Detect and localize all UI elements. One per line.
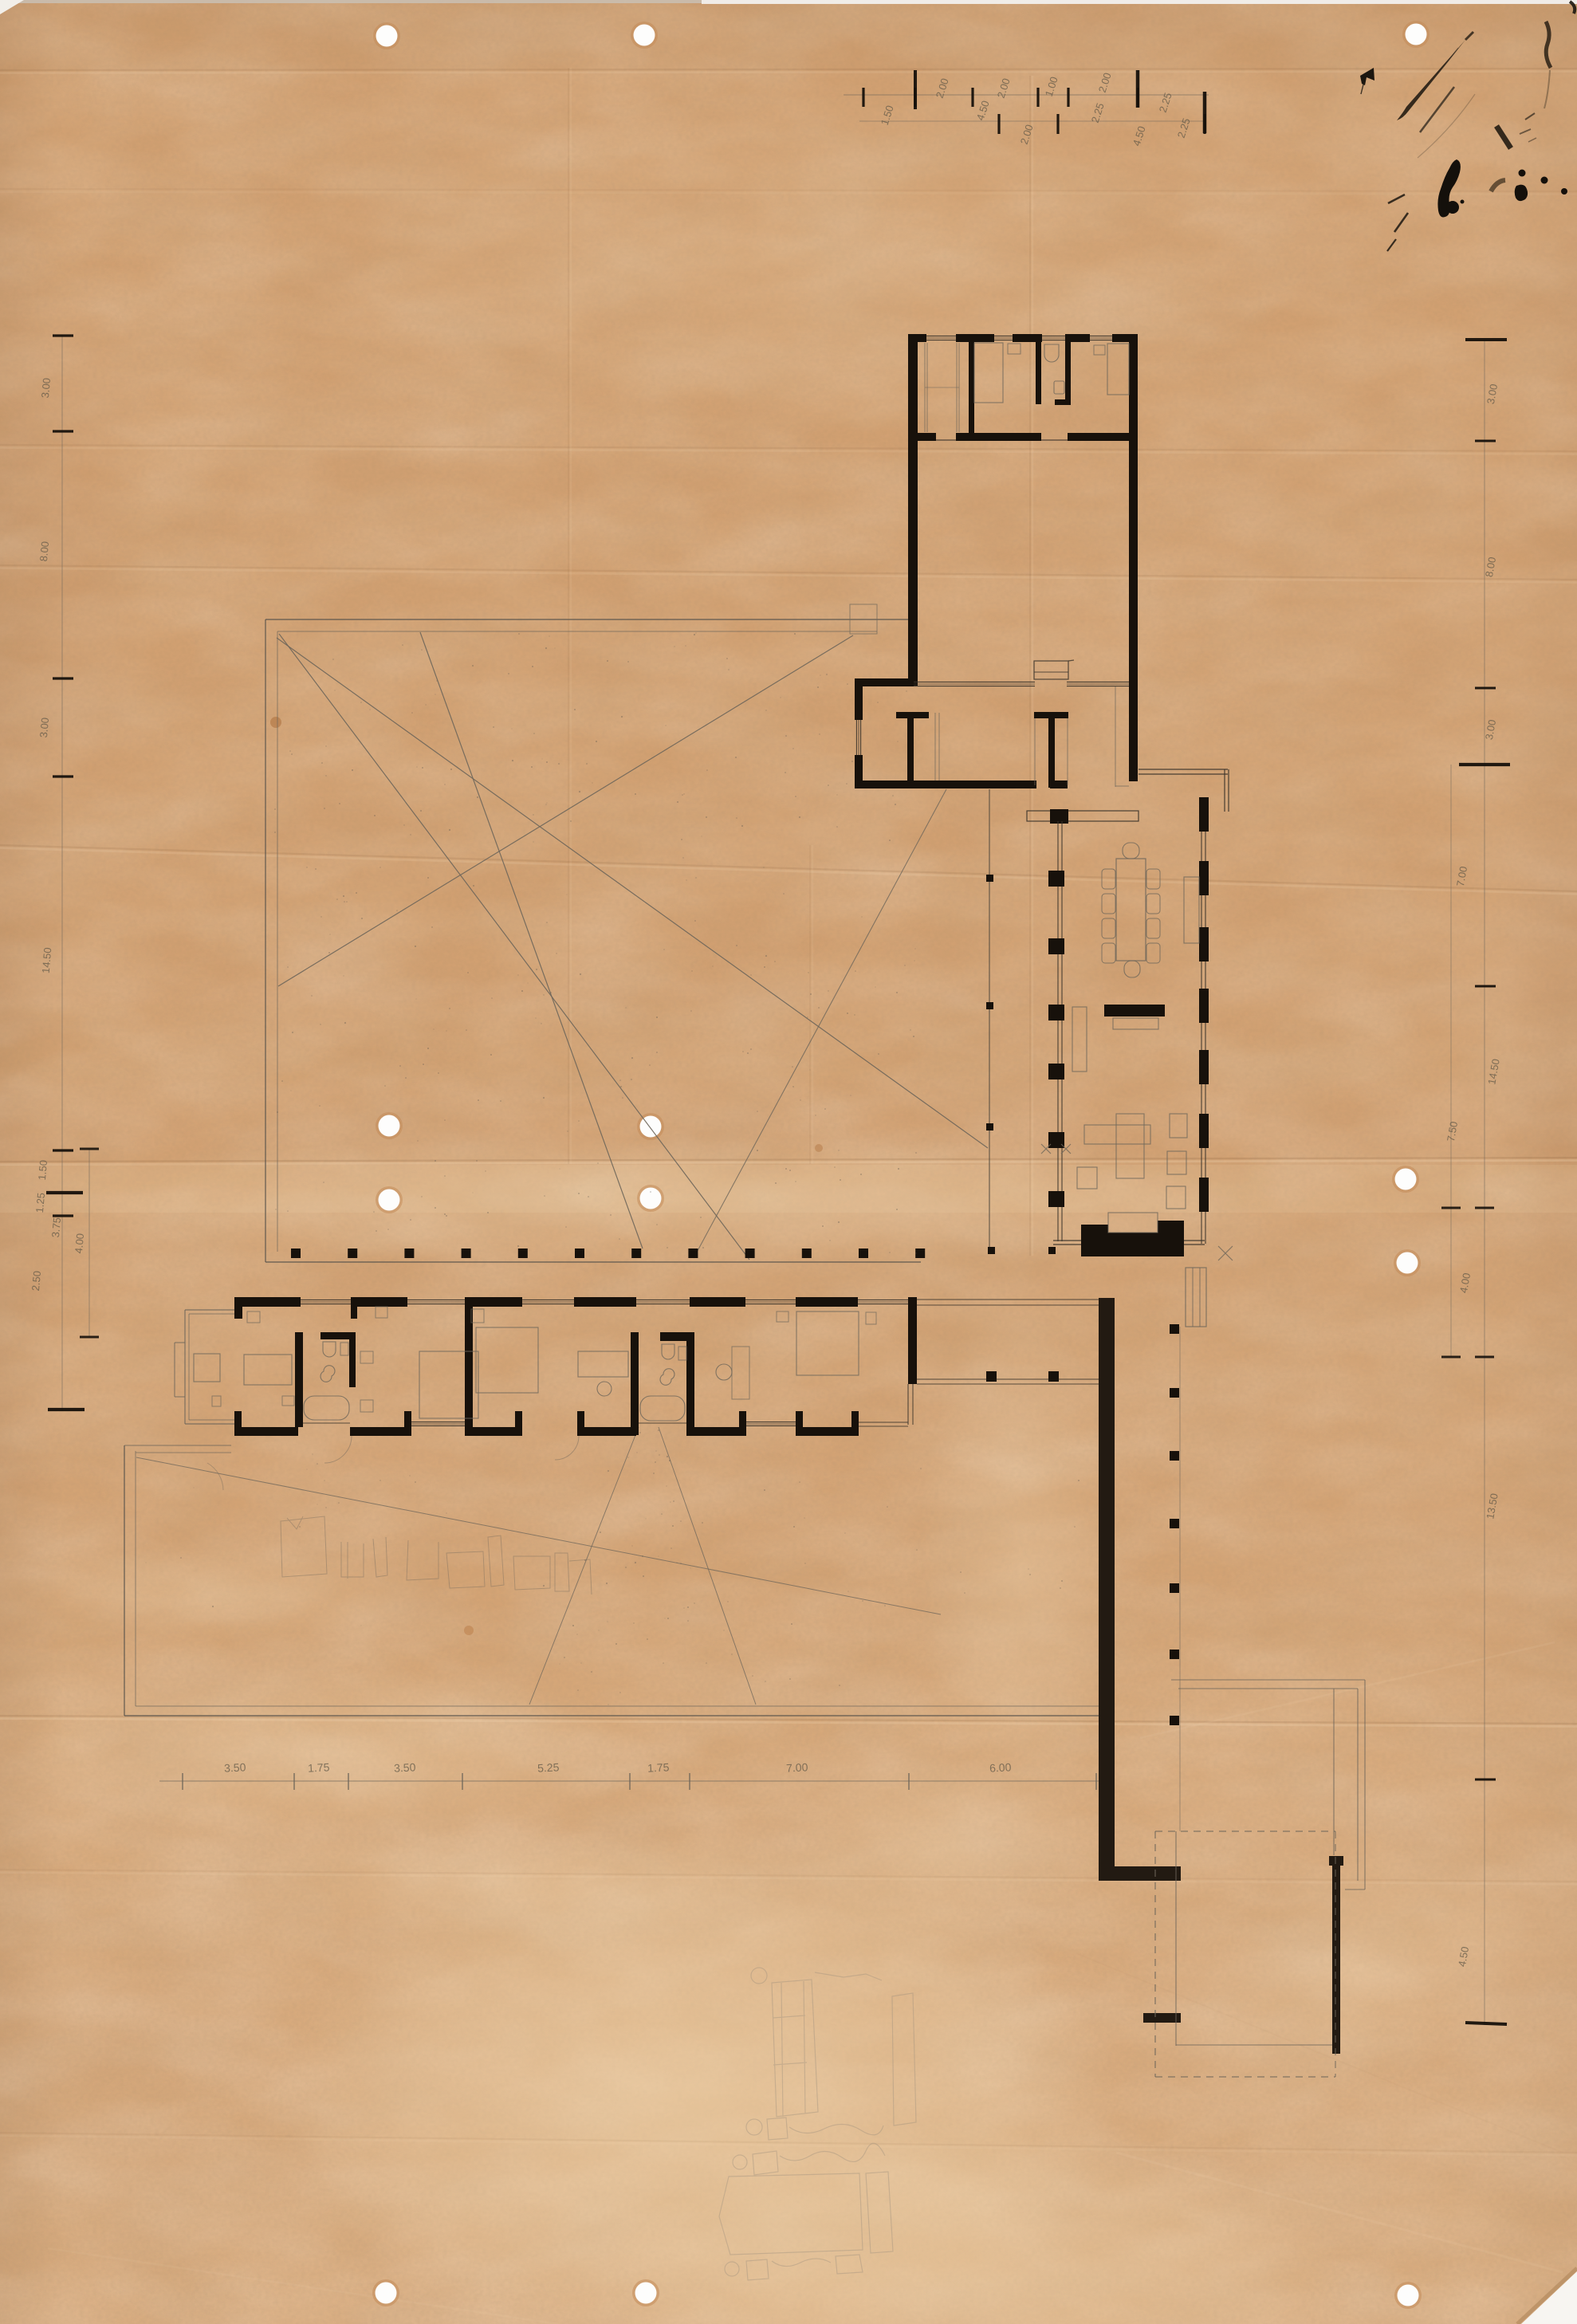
svg-text:3.75: 3.75 bbox=[49, 1217, 63, 1238]
svg-text:3.00: 3.00 bbox=[37, 717, 51, 738]
svg-text:3.50: 3.50 bbox=[224, 1760, 246, 1774]
svg-text:1.25: 1.25 bbox=[33, 1192, 47, 1213]
svg-text:1.75: 1.75 bbox=[308, 1760, 330, 1774]
svg-text:8.00: 8.00 bbox=[37, 541, 51, 562]
svg-text:2.50: 2.50 bbox=[29, 1270, 43, 1292]
svg-text:4.00: 4.00 bbox=[73, 1233, 86, 1254]
svg-text:3.00: 3.00 bbox=[39, 377, 53, 399]
svg-text:1.50: 1.50 bbox=[36, 1159, 49, 1181]
svg-text:5.25: 5.25 bbox=[537, 1760, 560, 1774]
svg-text:6.00: 6.00 bbox=[989, 1760, 1012, 1774]
svg-text:7.00: 7.00 bbox=[786, 1760, 808, 1774]
svg-text:1.75: 1.75 bbox=[647, 1760, 670, 1774]
svg-text:14.50: 14.50 bbox=[40, 947, 54, 974]
svg-text:3.50: 3.50 bbox=[394, 1760, 416, 1774]
